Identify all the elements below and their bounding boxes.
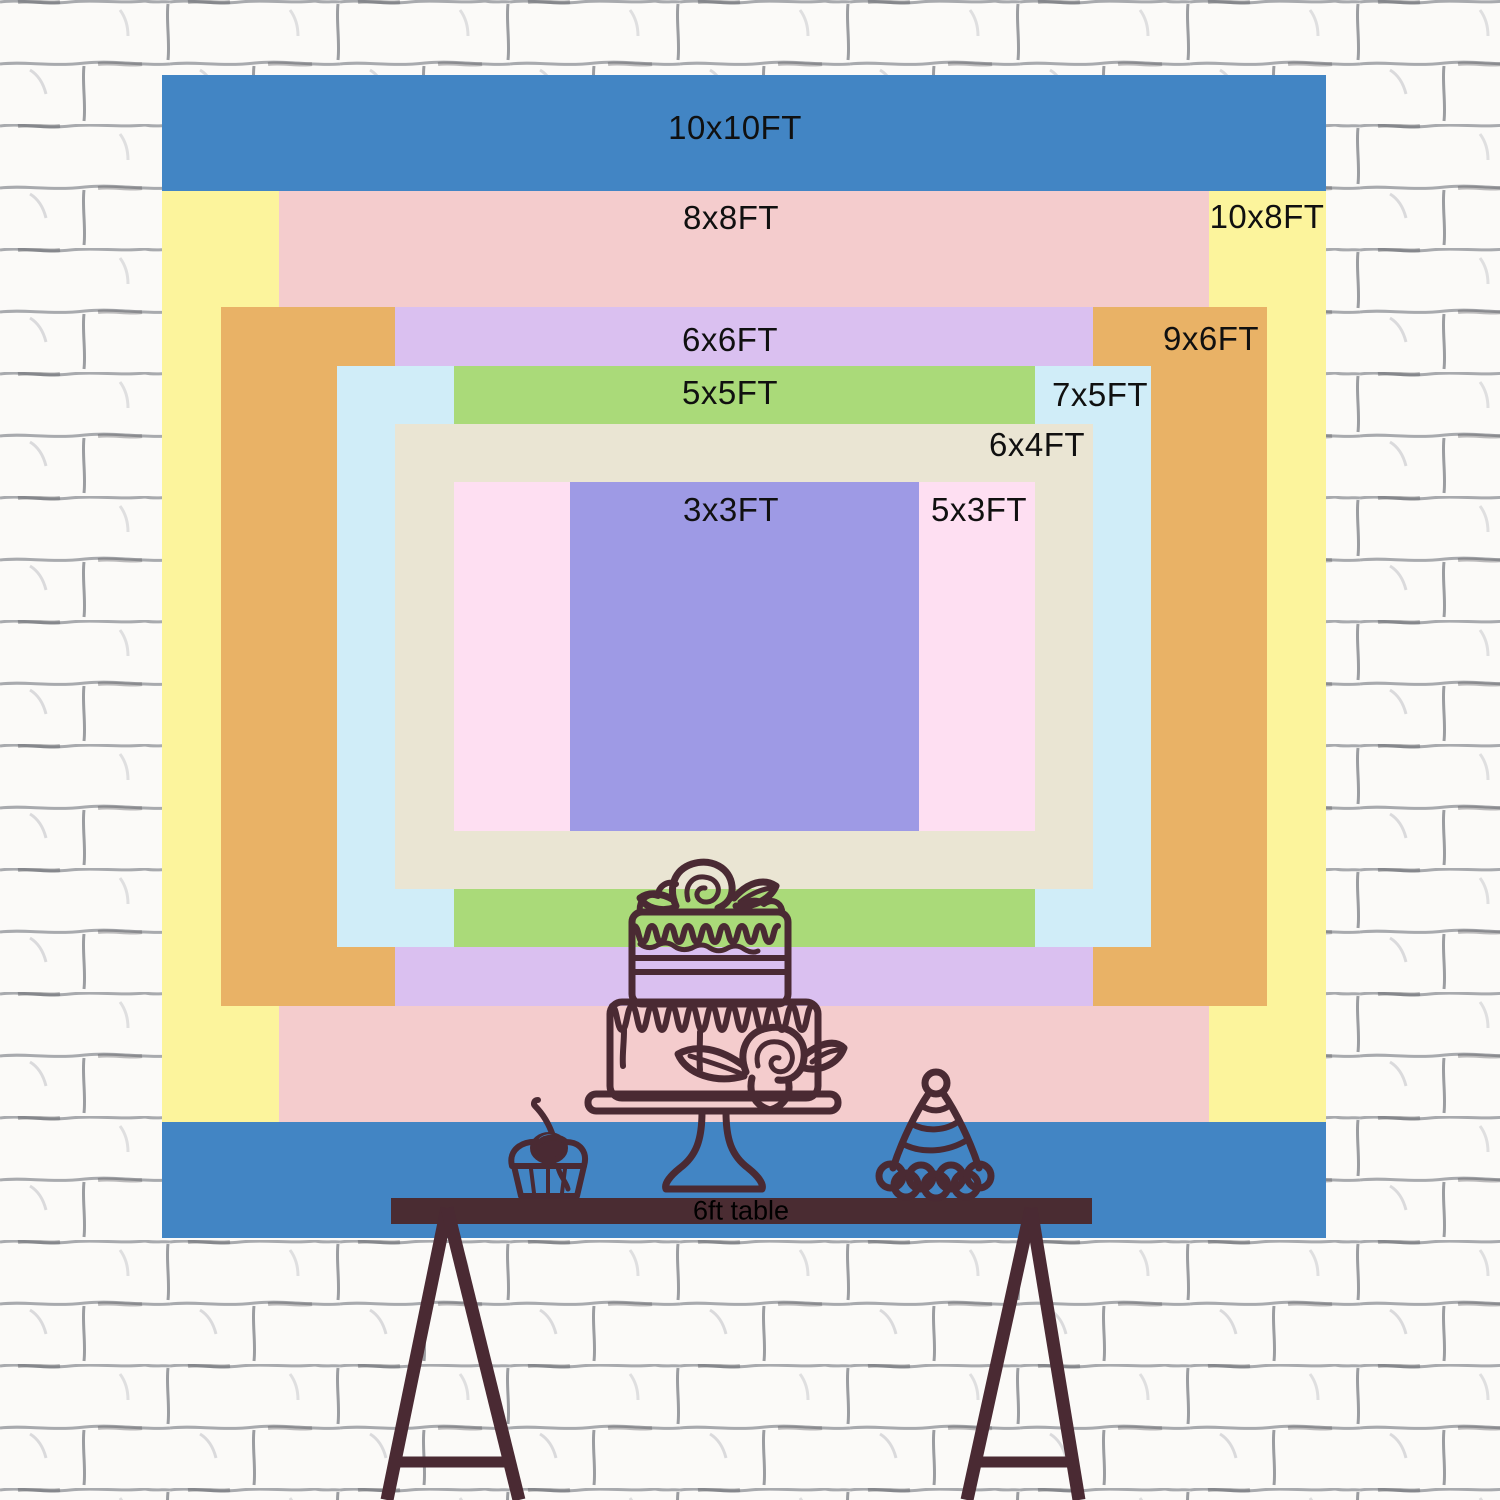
backdrop-size-chart: 10x10FT10x8FT8x8FT9x6FT6x6FT7x5FT5x5FT6x… (0, 0, 1500, 1500)
size-label-7x5ft: 7x5FT (1052, 376, 1148, 414)
table-label: 6ft table (693, 1196, 789, 1227)
size-label-10x10ft: 10x10FT (668, 109, 802, 147)
size-label-8x8ft: 8x8FT (683, 199, 779, 237)
backdrop-rect-3x3ft (570, 482, 919, 831)
size-label-5x5ft: 5x5FT (682, 374, 778, 412)
size-label-6x4ft: 6x4FT (989, 426, 1085, 464)
size-label-5x3ft: 5x3FT (931, 491, 1027, 529)
size-label-6x6ft: 6x6FT (682, 321, 778, 359)
size-label-3x3ft: 3x3FT (683, 491, 779, 529)
size-label-9x6ft: 9x6FT (1163, 320, 1259, 358)
size-label-10x8ft: 10x8FT (1210, 198, 1325, 236)
